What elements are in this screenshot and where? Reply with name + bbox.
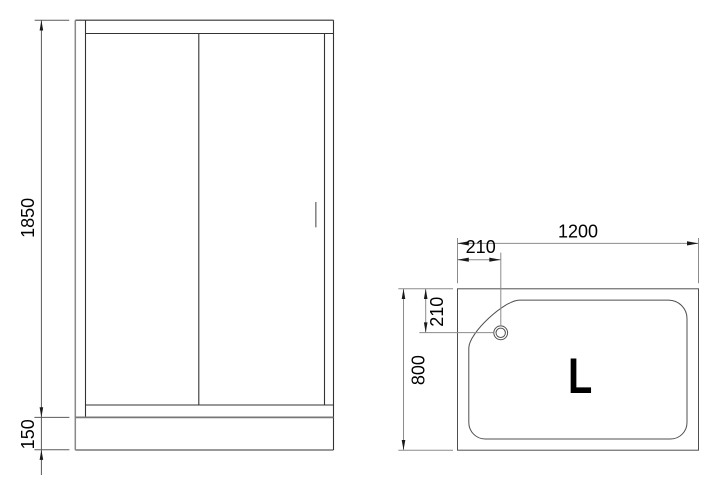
svg-text:150: 150 xyxy=(18,419,38,449)
svg-text:210: 210 xyxy=(466,237,496,257)
svg-text:800: 800 xyxy=(408,355,428,385)
svg-text:L: L xyxy=(568,347,592,404)
svg-text:210: 210 xyxy=(427,297,447,327)
svg-text:1850: 1850 xyxy=(18,198,38,238)
svg-text:1200: 1200 xyxy=(558,221,598,241)
